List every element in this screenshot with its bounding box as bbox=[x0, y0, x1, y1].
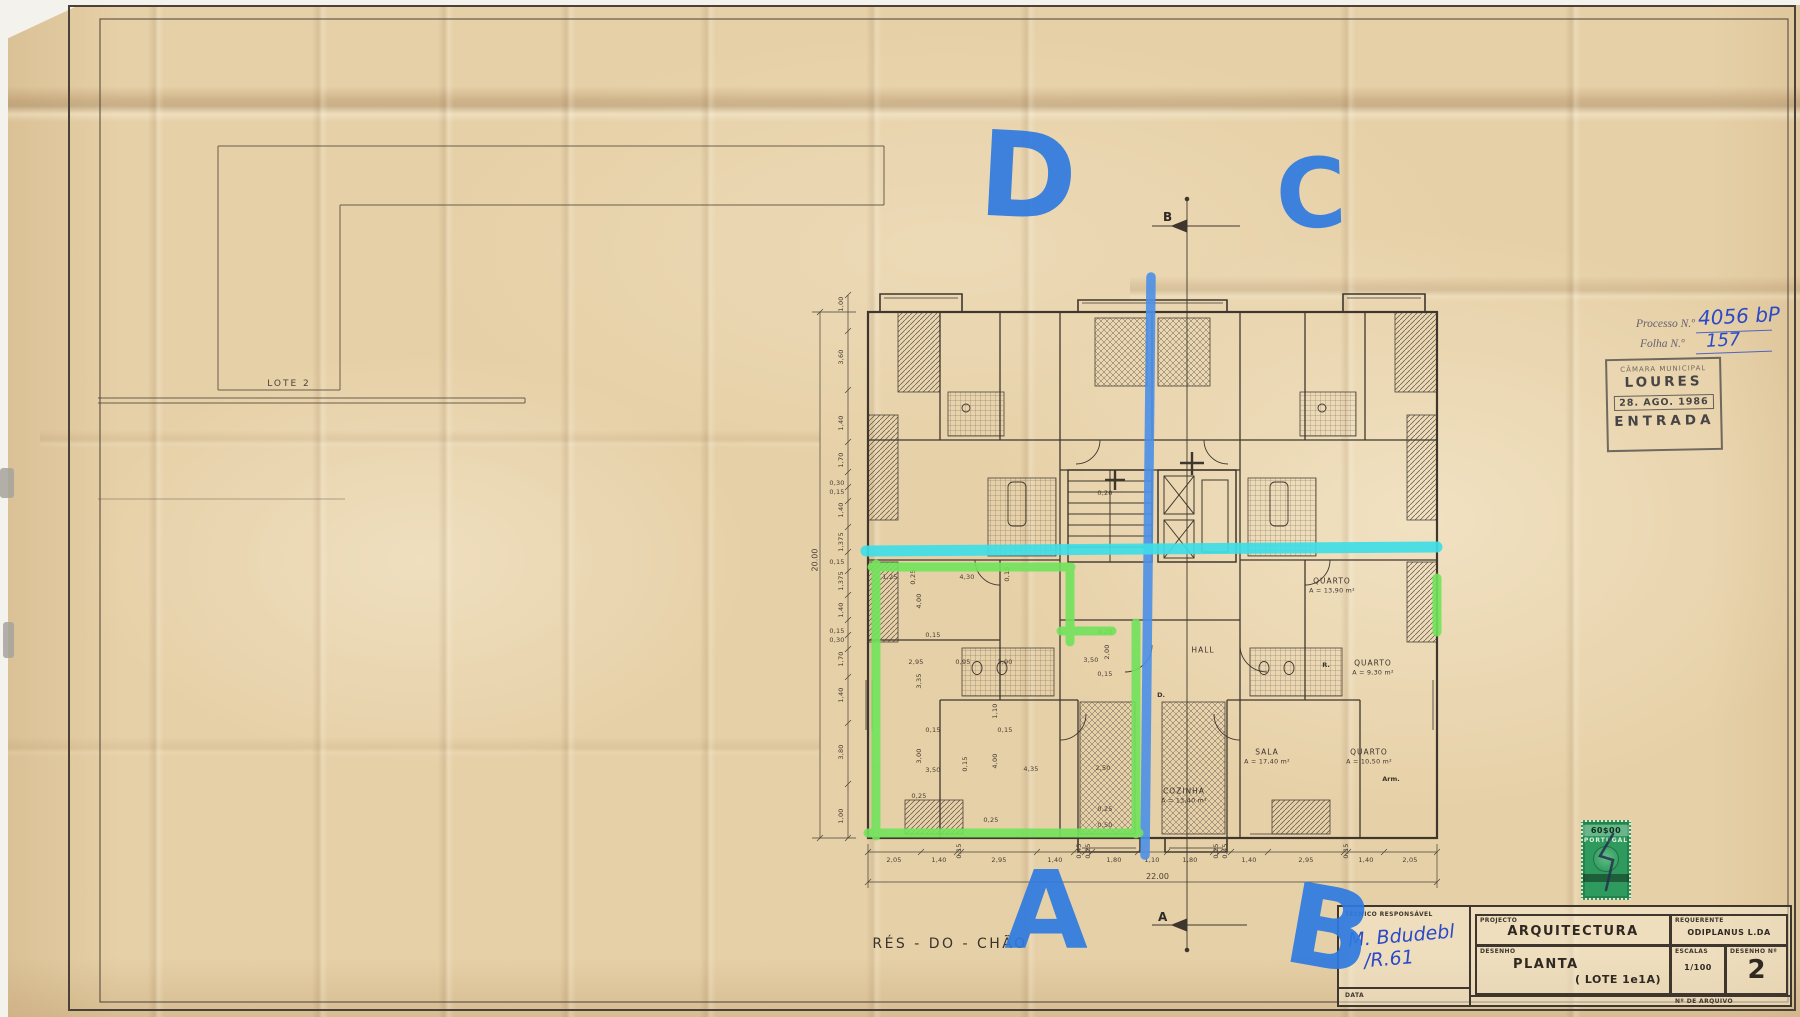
blue-marker-letter: A bbox=[1004, 858, 1088, 966]
scanned-blueprint-sheet: QUARTO A = 13,90 m² QUARTO A = 9,30 m² S… bbox=[0, 0, 1800, 1017]
blue-marker-letter: D bbox=[976, 115, 1080, 238]
blue-marker-letter: B bbox=[1277, 867, 1381, 992]
marker-letters-layer: DCAB bbox=[0, 0, 1800, 1017]
blue-marker-letter: C bbox=[1274, 145, 1348, 243]
